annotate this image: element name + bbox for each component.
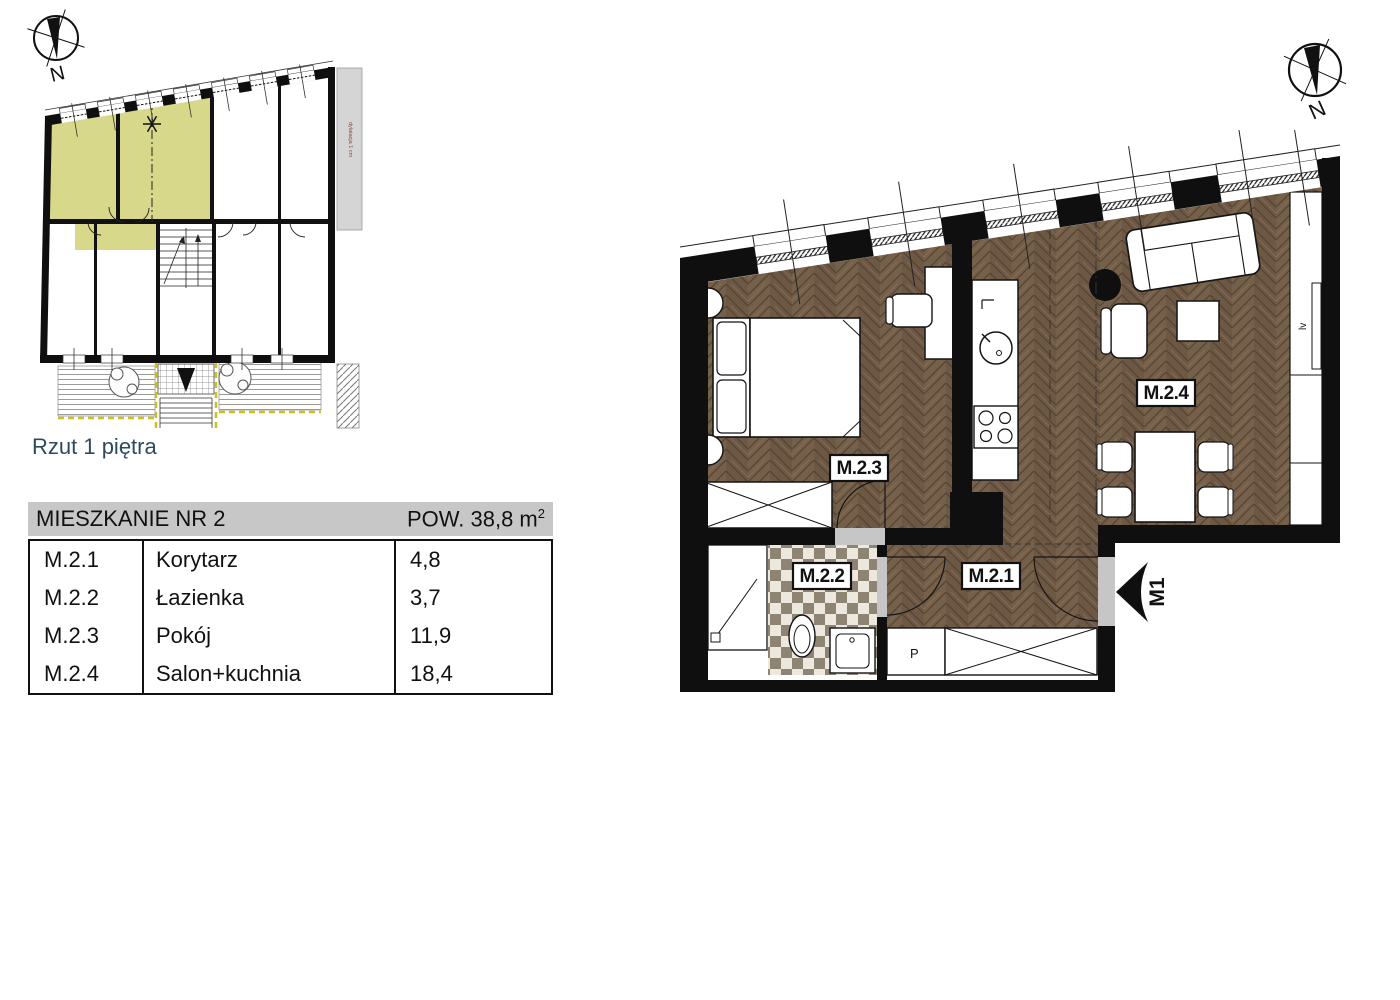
table-title: MIESZKANIE NR 2 — [36, 506, 225, 532]
main-floor-plan: lv — [660, 130, 1360, 710]
room-area: 18,4 — [394, 655, 551, 693]
stove-icon — [974, 406, 1018, 448]
kitchen-counter — [972, 280, 1018, 480]
dining-chair — [1097, 487, 1132, 517]
builtin-wardrobe: lv — [1290, 192, 1322, 525]
room-area: 11,9 — [394, 617, 551, 655]
room-label-m24: M.2.4 — [1143, 383, 1189, 404]
room-area: 4,8 — [394, 541, 551, 579]
room-code: M.2.2 — [30, 585, 142, 611]
compass-n-label: N — [1305, 95, 1330, 124]
bathroom-sink-icon — [830, 628, 875, 673]
room-area: 3,7 — [394, 579, 551, 617]
room-name: Łazienka — [142, 579, 394, 617]
tree-icon — [109, 367, 139, 397]
bed — [713, 318, 860, 437]
table-row: M.2.3 Pokój 11,9 — [30, 617, 551, 655]
room-name: Korytarz — [142, 541, 394, 579]
table-area-total: POW. 38,8 m2 — [407, 506, 545, 532]
shower — [708, 545, 767, 650]
apartment-table: MIESZKANIE NR 2 POW. 38,8 m2 M.2.1 Koryt… — [28, 502, 553, 695]
room-code: M.2.3 — [30, 623, 142, 649]
entrance-label: M1 — [1146, 577, 1169, 606]
room-label-m23: M.2.3 — [836, 458, 881, 479]
drain-icon — [711, 633, 720, 642]
column-icon — [1089, 269, 1121, 301]
coffee-table — [1177, 301, 1219, 341]
expansion-joint-note: dylatacja 1 cm — [347, 122, 353, 158]
desk-chair — [886, 294, 932, 327]
floorplan-sheet: N dylatacja 1 cm — [0, 0, 1400, 1000]
stairwell — [160, 228, 212, 288]
toilet-icon — [789, 615, 815, 657]
room-name: Pokój — [142, 617, 394, 655]
table-row: M.2.1 Korytarz 4,8 — [30, 541, 551, 579]
tree-icon — [219, 362, 251, 394]
radiator-label: lv — [1298, 323, 1309, 330]
adjacent-building: dylatacja 1 cm — [337, 68, 362, 428]
dining-table — [1135, 432, 1195, 522]
dining-chair — [1198, 442, 1233, 472]
corridor-wardrobe — [945, 628, 1097, 675]
table-row: M.2.4 Salon+kuchnia 18,4 — [30, 655, 551, 693]
room-label-m22: M.2.2 — [799, 566, 844, 587]
building-entrance — [158, 364, 214, 428]
dining-chair — [1198, 487, 1233, 517]
armchair — [1101, 304, 1147, 358]
washer-cabinet: P — [887, 628, 945, 675]
wardrobe — [704, 482, 832, 528]
entrance-marker: M1 — [1116, 562, 1169, 622]
north-compass-right: N — [1281, 34, 1357, 134]
room-label-m21: M.2.1 — [968, 566, 1014, 587]
dining-chair — [1097, 442, 1132, 472]
room-code: M.2.1 — [30, 547, 142, 573]
washer-label: P — [910, 646, 919, 661]
table-row: M.2.2 Łazienka 3,7 — [30, 579, 551, 617]
plan-caption: Rzut 1 piętra — [32, 434, 157, 460]
room-name: Salon+kuchnia — [142, 655, 394, 693]
kitchen-sink-icon — [980, 332, 1012, 364]
table-body: M.2.1 Korytarz 4,8 M.2.2 Łazienka 3,7 M.… — [28, 539, 553, 695]
overview-plan: dylatacja 1 cm — [28, 52, 368, 462]
entrance-arrow-icon — [1116, 562, 1148, 622]
table-header: MIESZKANIE NR 2 POW. 38,8 m2 — [28, 502, 553, 536]
room-code: M.2.4 — [30, 661, 142, 687]
